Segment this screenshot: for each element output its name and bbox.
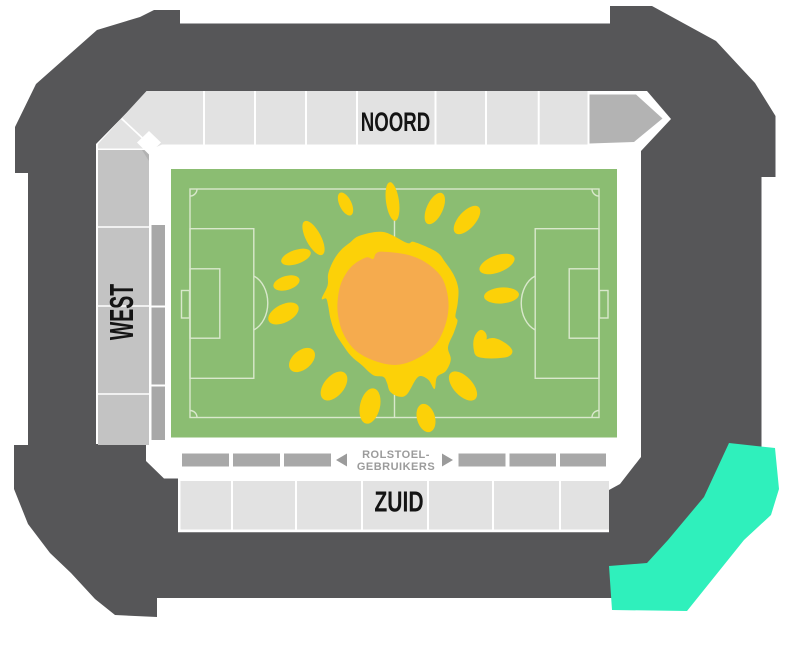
svg-text:GEBRUIKERS: GEBRUIKERS (357, 461, 435, 473)
svg-text:ROLSTOEL-: ROLSTOEL- (362, 449, 430, 461)
svg-text:ZUID: ZUID (374, 486, 423, 518)
svg-text:NOORD: NOORD (361, 107, 431, 137)
svg-text:WEST: WEST (103, 284, 141, 341)
